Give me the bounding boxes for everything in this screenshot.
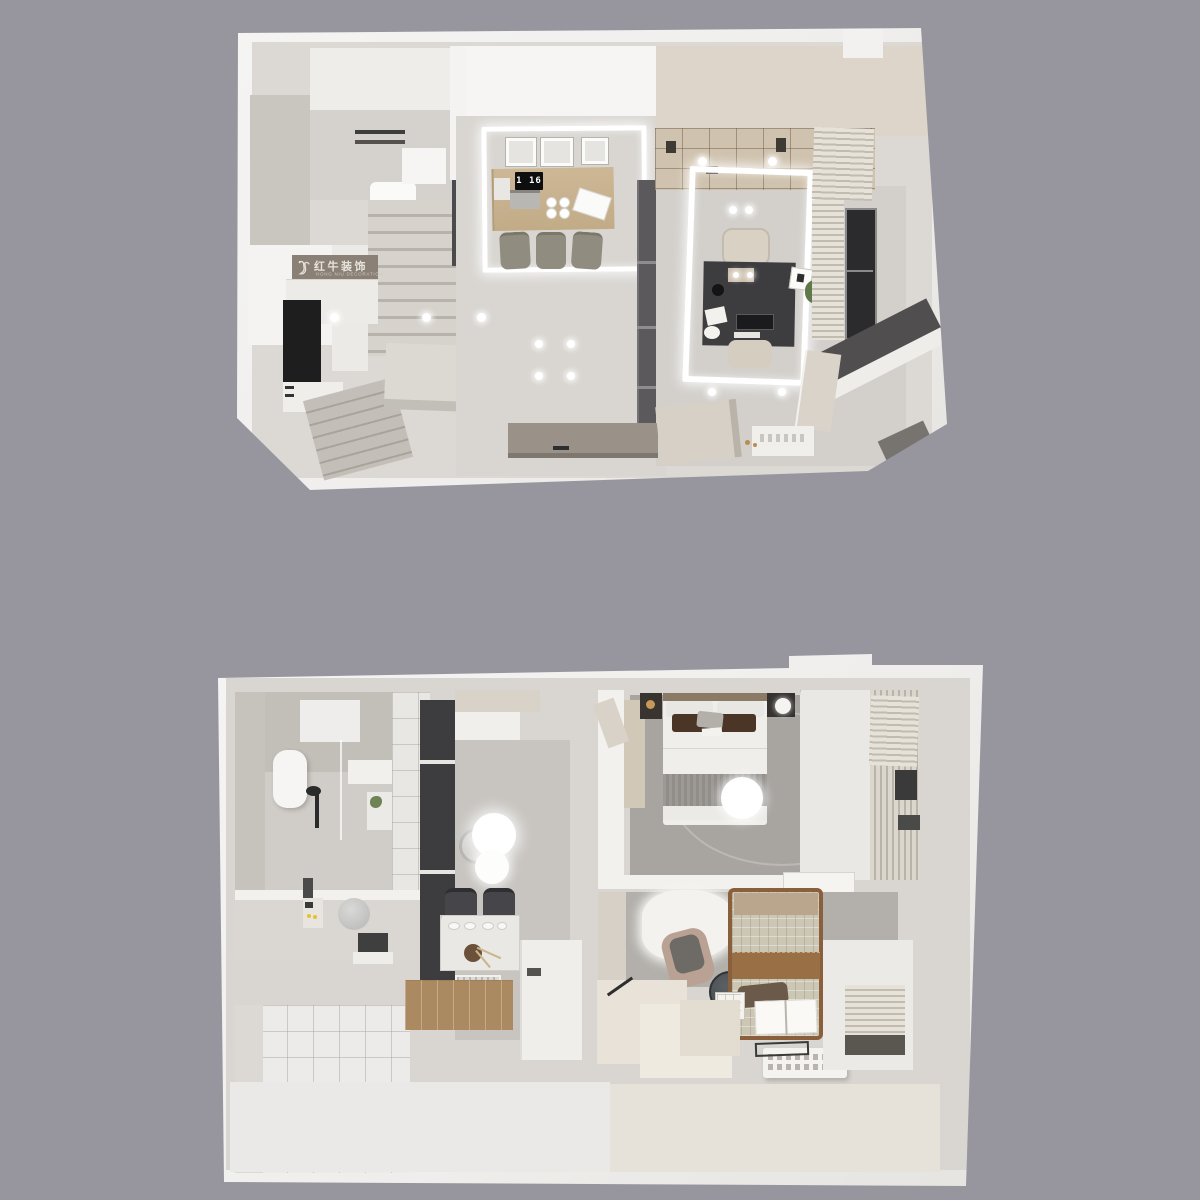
- ceiling-downlight: [422, 313, 431, 322]
- dining-chair: [499, 231, 531, 270]
- powder-door-panel: [303, 878, 313, 898]
- towel-rack-bar: [355, 140, 405, 144]
- window-mullion: [845, 270, 873, 272]
- render-canvas: 红牛装饰 HONG NIU DECORATION 1 16: [0, 0, 1200, 1200]
- ceiling-downlight: [535, 372, 543, 380]
- cabinet-handle: [285, 394, 294, 397]
- ceiling-downlight: [567, 372, 575, 380]
- brand-watermark: 红牛装饰 HONG NIU DECORATION: [292, 255, 378, 279]
- curtain-window-slot: [898, 815, 920, 830]
- wardrobe-gap: [420, 760, 455, 764]
- table-lamp-gold: [646, 700, 655, 709]
- bath-ceiling: [310, 48, 452, 110]
- plate: [546, 208, 557, 219]
- headphones: [704, 326, 720, 339]
- master-walkway: [800, 690, 870, 880]
- dining-chair: [571, 231, 604, 270]
- shelf-books: [666, 141, 676, 153]
- cabinet-handle: [285, 386, 294, 389]
- plate: [559, 208, 570, 219]
- desk-lamp: [712, 284, 724, 296]
- laptop: [510, 190, 540, 209]
- table-lamp-glow: [775, 698, 791, 714]
- wood-floor-entry: [405, 980, 513, 1030]
- shelf-item-dark: [305, 902, 313, 908]
- brand-name: 红牛装饰: [314, 262, 368, 273]
- hall-soffit: [455, 690, 540, 712]
- towel-rack: [355, 130, 405, 134]
- bench-louvers: [845, 985, 905, 1035]
- shoe-cabinet: [655, 399, 742, 465]
- plate: [546, 197, 557, 208]
- bed2-leather-strap: [732, 952, 820, 979]
- hall-platform: [520, 940, 582, 1060]
- bed-clutch: [702, 727, 723, 736]
- wall-divider: [235, 890, 425, 900]
- ceiling-downlight: [768, 157, 777, 166]
- closet-top-louvers: [869, 695, 919, 767]
- tv-console: [508, 423, 658, 458]
- slat-feature-wall: [812, 127, 874, 201]
- ceiling-downlight: [708, 388, 716, 396]
- ceiling-downlight: [698, 157, 707, 166]
- desk-block-c: [680, 1000, 740, 1056]
- kitchen-counter-dark: [283, 300, 321, 382]
- ceiling-downlight: [330, 313, 339, 322]
- lower-floor-plan: [210, 652, 990, 1192]
- glass-divider: [340, 740, 342, 840]
- rubber-duck: [307, 914, 311, 918]
- place-setting: [497, 922, 507, 930]
- brand-subtext: HONG NIU DECORATION: [316, 273, 384, 278]
- office-chair: [722, 228, 770, 266]
- notepad: [494, 178, 510, 200]
- ceiling-downlight: [477, 313, 486, 322]
- wall-notch: [843, 28, 883, 58]
- shower-head: [306, 786, 321, 796]
- window-glass: [845, 208, 877, 340]
- upper-floor-plan: 红牛装饰 HONG NIU DECORATION 1 16: [236, 26, 948, 492]
- keyboard: [734, 332, 760, 338]
- dining-chair: [536, 232, 566, 269]
- ceiling-downlight: [745, 206, 753, 214]
- gold-trinket: [745, 440, 750, 445]
- table-clock: 1 16: [515, 172, 543, 190]
- shelf-books: [776, 138, 786, 152]
- dining-ceiling: [466, 46, 666, 126]
- bed-pendant-lamp: [721, 777, 763, 819]
- ceiling-downlight: [567, 340, 575, 348]
- study-ceiling: [656, 46, 928, 136]
- duvet-fold: [663, 748, 767, 749]
- window-blinds: [812, 200, 844, 340]
- powder-sink-dark: [358, 933, 388, 952]
- headboard: [663, 693, 767, 701]
- desk-sphere-light: [733, 272, 739, 278]
- bath-wall: [250, 95, 310, 250]
- monitor: [736, 314, 774, 330]
- gold-trinket: [753, 443, 757, 447]
- water-heater: [273, 750, 307, 808]
- place-setting: [464, 922, 476, 930]
- ceiling-downlight: [535, 340, 543, 348]
- pendant-light-small: [475, 850, 509, 884]
- wardrobe-gap: [420, 870, 455, 874]
- bench-slot-dark: [845, 1035, 905, 1055]
- bull-icon: [297, 260, 310, 275]
- sink-counter: [402, 148, 446, 184]
- ceiling-downlight: [778, 388, 786, 396]
- console-handle: [553, 446, 569, 450]
- powder-mirror: [338, 898, 370, 930]
- bedroom-divider-wall: [598, 875, 813, 889]
- bath-shelf: [348, 760, 392, 784]
- entry-grille: [760, 434, 804, 442]
- plate: [559, 197, 570, 208]
- place-setting: [448, 922, 460, 930]
- desk-sphere-light: [747, 272, 753, 278]
- bottom-floor-light: [230, 1082, 610, 1172]
- curtain-window-slot: [895, 770, 917, 800]
- bed2-pillow-band: [734, 893, 818, 915]
- powder-counter: [353, 952, 393, 964]
- platform-item: [527, 968, 541, 976]
- place-setting: [482, 922, 494, 930]
- rubber-duck: [313, 915, 317, 919]
- bath-mirror-panel: [300, 700, 360, 742]
- powder-room-walls: [235, 900, 420, 960]
- bottom-floor-beige: [610, 1084, 940, 1172]
- vent-lid-outline: [755, 1041, 809, 1057]
- ceiling-downlight: [729, 206, 737, 214]
- staircase-upper: [368, 200, 456, 356]
- frame-dot: [796, 274, 804, 283]
- guest-chair: [728, 340, 772, 368]
- shower-arm: [315, 792, 319, 828]
